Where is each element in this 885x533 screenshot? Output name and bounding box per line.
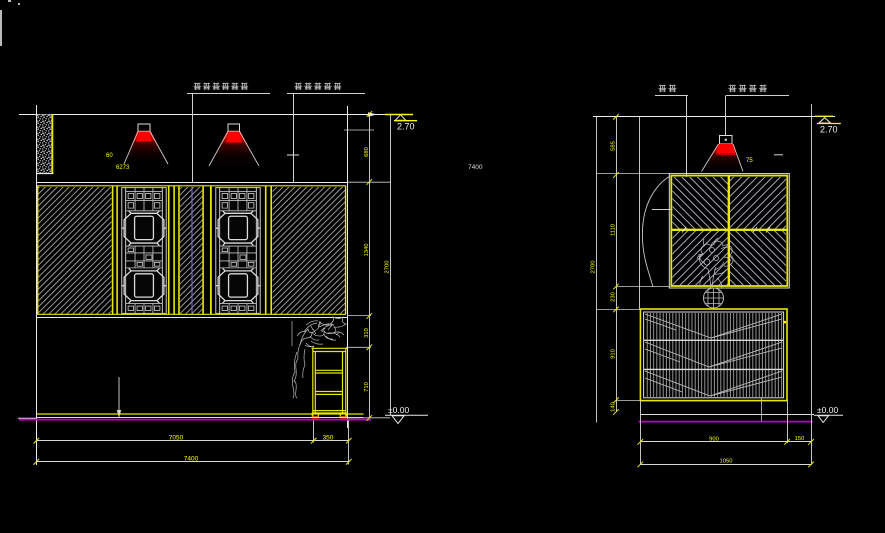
svg-text:900: 900: [709, 437, 719, 443]
svg-text:2.70: 2.70: [820, 125, 838, 135]
svg-text:6273: 6273: [116, 165, 130, 171]
svg-text:1050: 1050: [720, 459, 733, 465]
svg-text:2.70: 2.70: [397, 122, 415, 132]
svg-text:2700: 2700: [591, 261, 597, 274]
svg-text:310: 310: [364, 328, 370, 338]
svg-text:1110: 1110: [611, 224, 617, 236]
svg-text:910: 910: [611, 349, 617, 359]
svg-text:±0.00: ±0.00: [388, 405, 409, 415]
svg-text:150: 150: [795, 436, 805, 442]
svg-text:230: 230: [611, 292, 617, 302]
svg-text:680: 680: [364, 147, 370, 157]
svg-text:7400: 7400: [468, 164, 483, 171]
svg-text:350: 350: [323, 435, 334, 442]
svg-text:7400: 7400: [184, 456, 199, 463]
svg-text:710: 710: [364, 382, 370, 392]
svg-text:7050: 7050: [169, 435, 184, 442]
svg-text:±0.00: ±0.00: [817, 405, 838, 415]
svg-text:60: 60: [106, 153, 113, 159]
svg-text:75: 75: [746, 158, 753, 164]
svg-text:2700: 2700: [385, 261, 391, 274]
svg-text:140: 140: [611, 402, 617, 412]
svg-text:585: 585: [611, 141, 617, 151]
svg-text:1340: 1340: [364, 244, 370, 257]
